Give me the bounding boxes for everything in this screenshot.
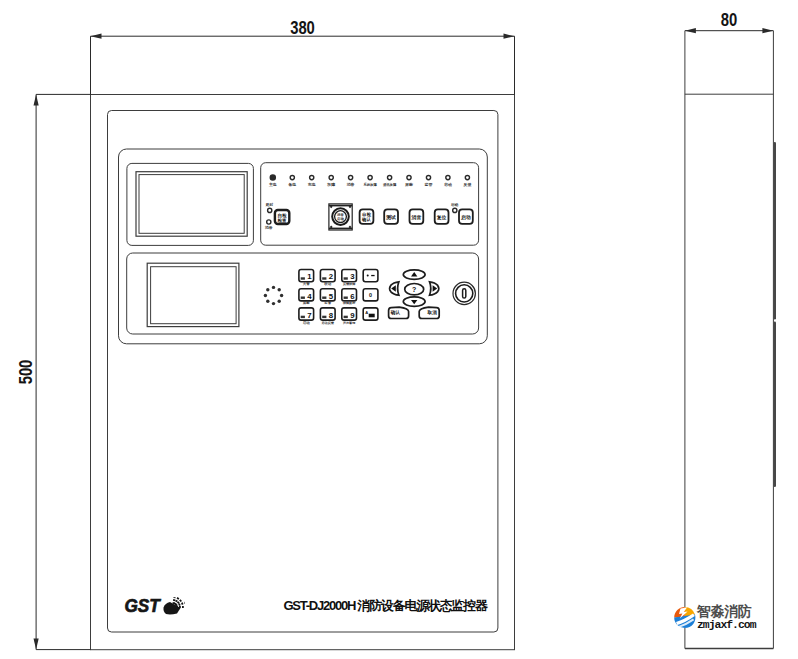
svg-text:500: 500 (15, 360, 36, 385)
svg-text:备电: 备电 (287, 182, 296, 187)
svg-text:消音: 消音 (411, 214, 422, 221)
svg-text:智淼消防: 智淼消防 (696, 603, 752, 619)
svg-text:系统故障: 系统故障 (363, 182, 378, 187)
svg-text:充电: 充电 (307, 182, 316, 187)
svg-text:4: 4 (307, 292, 312, 301)
svg-text:380: 380 (290, 17, 315, 38)
svg-text:启动: 启动 (444, 182, 452, 187)
svg-text:7: 7 (307, 311, 311, 320)
svg-text:启动: 启动 (303, 320, 311, 325)
svg-text:监管: 监管 (324, 300, 332, 305)
svg-text:启动反馈: 启动反馈 (322, 321, 335, 325)
svg-text:5: 5 (329, 292, 334, 301)
svg-text:故障延时: 故障延时 (342, 301, 356, 305)
svg-text:测试: 测试 (385, 214, 396, 221)
svg-text:启动: 启动 (460, 214, 471, 221)
svg-text:2: 2 (329, 272, 334, 281)
svg-text:9: 9 (350, 311, 355, 320)
svg-text:3: 3 (350, 272, 355, 281)
svg-text:0: 0 (369, 292, 372, 298)
svg-text:GST-DJ2000H 消防设备电源状态监控器: GST-DJ2000H 消防设备电源状态监控器 (283, 598, 489, 613)
svg-text:屏蔽: 屏蔽 (404, 182, 413, 187)
svg-text:消音: 消音 (346, 182, 355, 187)
svg-text:监管: 监管 (425, 182, 433, 187)
svg-text:故障: 故障 (326, 182, 335, 187)
svg-text:zmjaxf.com: zmjaxf.com (697, 619, 757, 631)
svg-text:反馈: 反馈 (463, 182, 472, 187)
svg-text:8: 8 (329, 311, 334, 320)
svg-text:检查: 检查 (277, 218, 288, 223)
svg-text:声光警报: 声光警报 (342, 321, 356, 325)
svg-text:通讯故障: 通讯故障 (382, 182, 397, 187)
svg-text:联动: 联动 (323, 282, 332, 286)
svg-text:1: 1 (307, 272, 312, 281)
svg-text:火警: 火警 (303, 282, 311, 286)
svg-text:延时: 延时 (265, 202, 274, 207)
svg-text:主电: 主电 (268, 182, 277, 187)
svg-text:80: 80 (721, 9, 737, 30)
svg-text:启动: 启动 (337, 217, 344, 221)
svg-text:反馈故障: 反馈故障 (342, 282, 356, 286)
svg-text:A: A (365, 310, 368, 315)
svg-text:消音: 消音 (264, 225, 273, 230)
svg-text:启动: 启动 (451, 202, 459, 207)
svg-text:?: ? (412, 286, 416, 293)
svg-text:屏蔽: 屏蔽 (302, 300, 311, 305)
svg-text:GST: GST (125, 596, 162, 616)
svg-text:取消: 取消 (427, 309, 438, 316)
svg-text:6: 6 (350, 292, 355, 301)
